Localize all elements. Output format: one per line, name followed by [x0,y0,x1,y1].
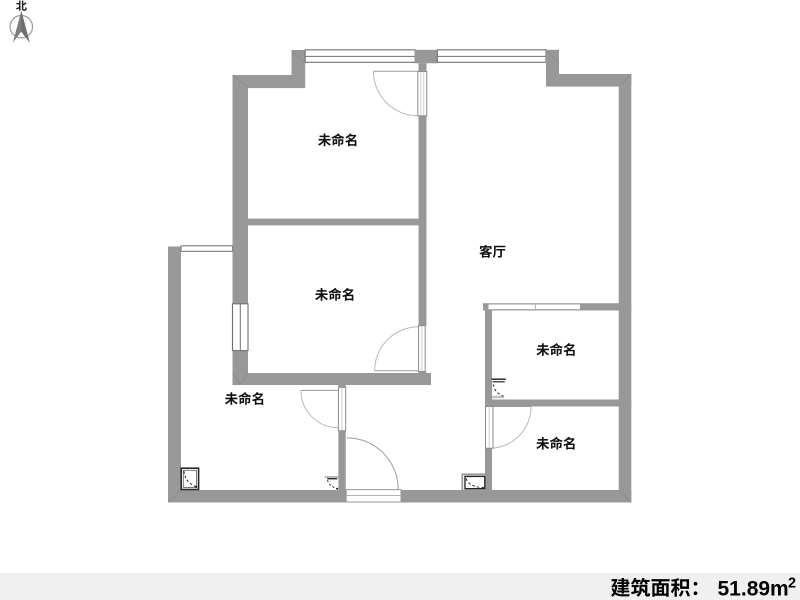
svg-text:51.89m: 51.89m [718,578,789,600]
svg-text:2: 2 [788,576,796,592]
